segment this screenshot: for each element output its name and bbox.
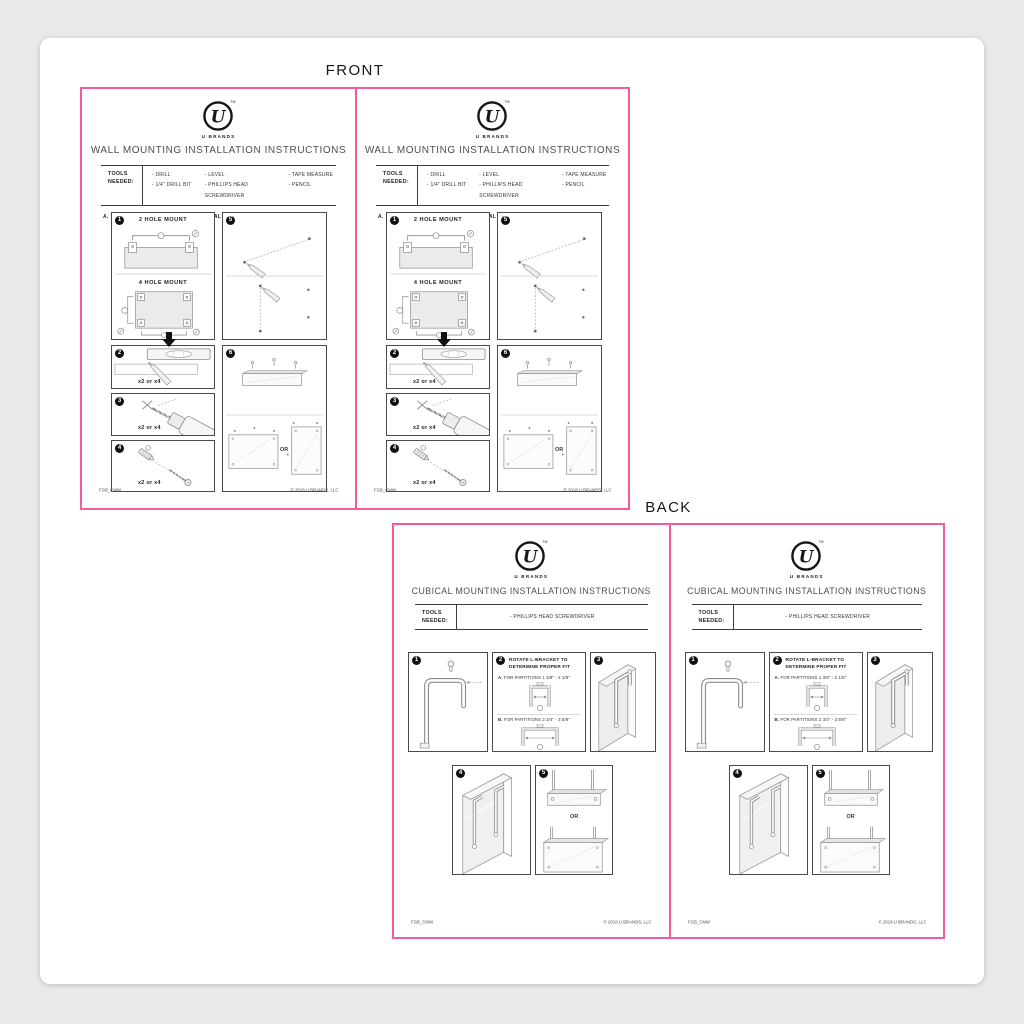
four-hole-mount-label: 4 HOLE MOUNT: [387, 280, 489, 286]
step-number-badge: 5: [501, 216, 510, 225]
bracket-fit-b-diagram: [513, 724, 567, 751]
step-number-badge: 2: [390, 349, 399, 358]
partition-b-label: B.FOR PARTITIONS 2 3/4" - 3 5/8": [498, 717, 582, 722]
ubrands-logo-icon: U TM: [476, 97, 510, 133]
logo-letter: U: [798, 548, 814, 568]
hang-board-diagram: [536, 766, 612, 874]
tools-column-1: - DRILL - 1/4" DRILL BIT: [152, 170, 205, 201]
step-number-badge: 3: [594, 656, 603, 665]
ubrands-logo-icon: U TM: [790, 537, 824, 573]
insert-anchor-diagram: [387, 441, 489, 491]
step-number-badge: 2: [115, 349, 124, 358]
l-bracket-diagram: [686, 653, 764, 751]
down-arrow-icon: [161, 332, 177, 348]
tools-table: TOOLS NEEDED: - PHILLIPS HEAD SCREWDRIVE…: [415, 604, 648, 630]
cubical-mounting-title: CUBICAL MOUNTING INSTALLATION INSTRUCTIO…: [394, 586, 669, 596]
two-hole-mount-label: 2 HOLE MOUNT: [387, 217, 489, 223]
tools-column-3: - TAPE MEASURE - PENCIL: [288, 170, 334, 201]
step-number-badge: 4: [115, 444, 124, 453]
wall-mounting-title: WALL MOUNTING INSTALLATION INSTRUCTIONS: [357, 145, 628, 156]
bracket-fit-a-diagram: [790, 682, 844, 712]
brand-logo: U TM U BRANDS: [82, 97, 355, 139]
back-step-5: 5 OR: [812, 765, 890, 875]
drill-holes-diagram: [387, 394, 489, 435]
ubrands-logo-icon: U TM: [202, 97, 236, 133]
brand-logo: U TM U BRANDS: [357, 97, 628, 139]
quantity-label: x2 or x4: [138, 480, 161, 486]
front-step-1: 1 2 HOLE MOUNT 4 HOLE MOUNT: [386, 212, 490, 340]
step-number-badge: 3: [390, 397, 399, 406]
front-step-4: 4 x2 or x4: [111, 440, 215, 492]
panel-footer: FGB_CMW © 2018 U BRANDS, LLC: [411, 920, 652, 926]
tool-item: - LEVEL: [479, 170, 562, 180]
panel-footer: FGB_CMW © 2018 U BRANDS, LLC: [374, 488, 611, 494]
back-step-1: 1: [408, 652, 488, 752]
front-step-2: 2 x2 or x4: [386, 345, 490, 389]
tool-item: - PENCIL: [288, 180, 334, 190]
tools-list: - PHILLIPS HEAD SCREWDRIVER: [734, 605, 923, 629]
or-label: OR: [570, 814, 578, 820]
tools-list: - DRILL - 1/4" DRILL BIT - LEVEL - PHILL…: [143, 166, 336, 205]
bracket-fit-a-diagram: [513, 682, 567, 712]
tool-item: - DRILL: [427, 170, 479, 180]
front-step-4: 4 x2 or x4: [386, 440, 490, 492]
step-number-badge: 6: [226, 349, 235, 358]
brand-logo: U TM U BRANDS: [671, 537, 944, 579]
front-step-3: 3 x2 or x4: [111, 393, 215, 436]
tools-list: - PHILLIPS HEAD SCREWDRIVER: [457, 605, 648, 629]
wall-mounting-title: WALL MOUNTING INSTALLATION INSTRUCTIONS: [82, 145, 355, 156]
trademark-mark: TM: [504, 100, 509, 104]
panel-footer: FGB_CMW © 2018 U BRANDS, LLC: [99, 488, 338, 494]
brand-wordmark: U BRANDS: [202, 134, 236, 139]
brand-wordmark: U BRANDS: [790, 574, 824, 579]
or-label: OR: [280, 447, 288, 453]
level-transfer-diagram: [498, 213, 601, 339]
tools-needed-label: TOOLS NEEDED:: [101, 166, 143, 205]
front-step-5: 5: [222, 212, 327, 340]
step-number-badge: 1: [689, 656, 698, 665]
back-proof-box: U TM U BRANDS CUBICAL MOUNTING INSTALLAT…: [392, 523, 945, 939]
brackets-on-partition-diagram: [730, 766, 807, 874]
down-arrow-icon: [436, 332, 452, 348]
partition-b-label: B.FOR PARTITIONS 2 3/4" - 3 5/8": [775, 717, 859, 722]
tools-needed-label: TOOLS NEEDED:: [376, 166, 418, 205]
page-background: { "labels": {"front": "FRONT", "back": "…: [0, 0, 1024, 1024]
partition-a-label: A.FOR PARTITIONS 1 3/8" - 2 1/8": [775, 675, 859, 680]
partition-a-label: A.FOR PARTITIONS 1 3/8" - 2 1/8": [498, 675, 582, 680]
front-proof-box: U TM U BRANDS WALL MOUNTING INSTALLATION…: [80, 87, 630, 510]
tool-item: - PHILLIPS HEAD SCREWDRIVER: [479, 180, 562, 201]
front-step-6: 6 OR: [222, 345, 327, 492]
front-panel: U TM U BRANDS WALL MOUNTING INSTALLATION…: [355, 89, 628, 508]
mark-holes-diagram: [387, 346, 489, 388]
step-number-badge: 3: [115, 397, 124, 406]
tools-column-1: - DRILL - 1/4" DRILL BIT: [427, 170, 479, 201]
hole-mount-diagram: [387, 213, 489, 339]
four-hole-mount-label: 4 HOLE MOUNT: [112, 280, 214, 286]
tools-column-2: - LEVEL - PHILLIPS HEAD SCREWDRIVER: [205, 170, 289, 201]
trademark-mark: TM: [543, 540, 548, 544]
rotate-bracket-heading: ROTATE L-BRACKET TO DETERMINE PROPER FIT: [786, 657, 860, 671]
step-number-badge: 2: [496, 656, 505, 665]
panel-footer: FGB_CMW © 2018 U BRANDS, LLC: [688, 920, 927, 926]
divider: [497, 714, 581, 715]
tool-item: - TAPE MEASURE: [562, 170, 607, 180]
front-panel: U TM U BRANDS WALL MOUNTING INSTALLATION…: [82, 89, 355, 508]
step-number-badge: 6: [501, 349, 510, 358]
tool-item: - 1/4" DRILL BIT: [427, 180, 479, 190]
cubical-mounting-title: CUBICAL MOUNTING INSTALLATION INSTRUCTIO…: [671, 586, 944, 596]
back-step-2: 2 ROTATE L-BRACKET TO DETERMINE PROPER F…: [492, 652, 586, 752]
brand-wordmark: U BRANDS: [476, 134, 510, 139]
footer-code: FGB_CMW: [411, 921, 433, 925]
tool-item: - PENCIL: [562, 180, 607, 190]
step-number-badge: 4: [390, 444, 399, 453]
insert-anchor-diagram: [112, 441, 214, 491]
front-side-label: FRONT: [80, 62, 630, 79]
step-number-badge: 5: [816, 769, 825, 778]
footer-code: FGB_CMW: [374, 489, 396, 493]
front-step-3: 3 x2 or x4: [386, 393, 490, 436]
or-label: OR: [847, 814, 855, 820]
drill-holes-diagram: [112, 394, 214, 435]
front-step-1: 1 2 HOLE MOUNT 4 HOLE MOUNT: [111, 212, 215, 340]
step-number-badge: 4: [456, 769, 465, 778]
back-step-4: 4: [452, 765, 531, 875]
front-steps-grid: 1 2 HOLE MOUNT 4 HOLE MOUNT: [111, 212, 327, 494]
step-number-badge: 1: [115, 216, 124, 225]
mark-holes-diagram: [112, 346, 214, 388]
back-steps-grid: 1 2 ROTATE L-BRACKET TO DETERMINE PROPER…: [408, 652, 656, 878]
back-panel: U TM U BRANDS CUBICAL MOUNTING INSTALLAT…: [394, 525, 669, 937]
quantity-label: x2 or x4: [413, 425, 436, 431]
footer-copyright: © 2018 U BRANDS, LLC: [290, 489, 338, 493]
two-hole-mount-label: 2 HOLE MOUNT: [112, 217, 214, 223]
level-transfer-diagram: [223, 213, 326, 339]
tool-item: - DRILL: [152, 170, 205, 180]
back-step-3: 3: [867, 652, 933, 752]
quantity-label: x2 or x4: [413, 379, 436, 385]
footer-copyright: © 2018 U BRANDS, LLC: [563, 489, 611, 493]
front-steps-grid: 1 2 HOLE MOUNT 4 HOLE MOUNT: [386, 212, 602, 494]
tool-item: - PHILLIPS HEAD SCREWDRIVER: [510, 612, 595, 622]
back-side-label: BACK: [392, 499, 945, 516]
brand-logo: U TM U BRANDS: [394, 537, 669, 579]
footer-code: FGB_CMW: [99, 489, 121, 493]
front-step-2: 2 x2 or x4: [111, 345, 215, 389]
hang-bracket-diagram: [591, 653, 655, 751]
step-number-badge: 5: [539, 769, 548, 778]
logo-letter: U: [210, 108, 226, 128]
or-label: OR: [555, 447, 563, 453]
footer-code: FGB_CMW: [688, 921, 710, 925]
quantity-label: x2 or x4: [138, 425, 161, 431]
footer-copyright: © 2018 U BRANDS, LLC: [878, 921, 926, 925]
mounted-board-diagram: [498, 346, 601, 491]
step-number-badge: 2: [773, 656, 782, 665]
brand-wordmark: U BRANDS: [514, 574, 548, 579]
l-bracket-diagram: [409, 653, 487, 751]
back-step-1: 1: [685, 652, 765, 752]
footer-copyright: © 2018 U BRANDS, LLC: [604, 921, 652, 925]
logo-letter: U: [484, 108, 500, 128]
front-step-6: 6 OR: [497, 345, 602, 492]
bracket-fit-b-diagram: [790, 724, 844, 751]
front-step-5: 5: [497, 212, 602, 340]
note-a-label: A.: [378, 214, 384, 220]
step-number-badge: 4: [733, 769, 742, 778]
quantity-label: x2 or x4: [138, 379, 161, 385]
back-step-2: 2 ROTATE L-BRACKET TO DETERMINE PROPER F…: [769, 652, 863, 752]
back-step-3: 3: [590, 652, 656, 752]
divider: [774, 714, 858, 715]
tool-item: - PHILLIPS HEAD SCREWDRIVER: [205, 180, 289, 201]
hang-bracket-diagram: [868, 653, 932, 751]
tools-needed-label: TOOLS NEEDED:: [692, 605, 734, 629]
tool-item: - LEVEL: [205, 170, 289, 180]
note-a-label: A.: [103, 214, 109, 220]
back-steps-grid: 1 2 ROTATE L-BRACKET TO DETERMINE PROPER…: [685, 652, 933, 878]
brackets-on-partition-diagram: [453, 766, 530, 874]
tools-list: - DRILL - 1/4" DRILL BIT - LEVEL - PHILL…: [418, 166, 609, 205]
step-number-badge: 3: [871, 656, 880, 665]
back-panel: U TM U BRANDS CUBICAL MOUNTING INSTALLAT…: [669, 525, 944, 937]
tools-table: TOOLS NEEDED: - DRILL - 1/4" DRILL BIT -…: [101, 165, 336, 206]
trademark-mark: TM: [818, 540, 823, 544]
tools-needed-label: TOOLS NEEDED:: [415, 605, 457, 629]
tools-table: TOOLS NEEDED: - PHILLIPS HEAD SCREWDRIVE…: [692, 604, 923, 630]
mounted-board-diagram: [223, 346, 326, 491]
step-number-badge: 1: [390, 216, 399, 225]
tool-item: - TAPE MEASURE: [288, 170, 334, 180]
back-step-4: 4: [729, 765, 808, 875]
back-step-5: 5 OR: [535, 765, 613, 875]
tools-column-3: - TAPE MEASURE - PENCIL: [562, 170, 607, 201]
ubrands-logo-icon: U TM: [514, 537, 548, 573]
tool-item: - 1/4" DRILL BIT: [152, 180, 205, 190]
tools-column-2: - LEVEL - PHILLIPS HEAD SCREWDRIVER: [479, 170, 562, 201]
quantity-label: x2 or x4: [413, 480, 436, 486]
logo-letter: U: [523, 548, 539, 568]
tool-item: - PHILLIPS HEAD SCREWDRIVER: [785, 612, 870, 622]
rotate-bracket-heading: ROTATE L-BRACKET TO DETERMINE PROPER FIT: [509, 657, 583, 671]
hole-mount-diagram: [112, 213, 214, 339]
hang-board-diagram: [813, 766, 889, 874]
step-number-badge: 1: [412, 656, 421, 665]
step-number-badge: 5: [226, 216, 235, 225]
trademark-mark: TM: [230, 100, 235, 104]
tools-table: TOOLS NEEDED: - DRILL - 1/4" DRILL BIT -…: [376, 165, 609, 206]
